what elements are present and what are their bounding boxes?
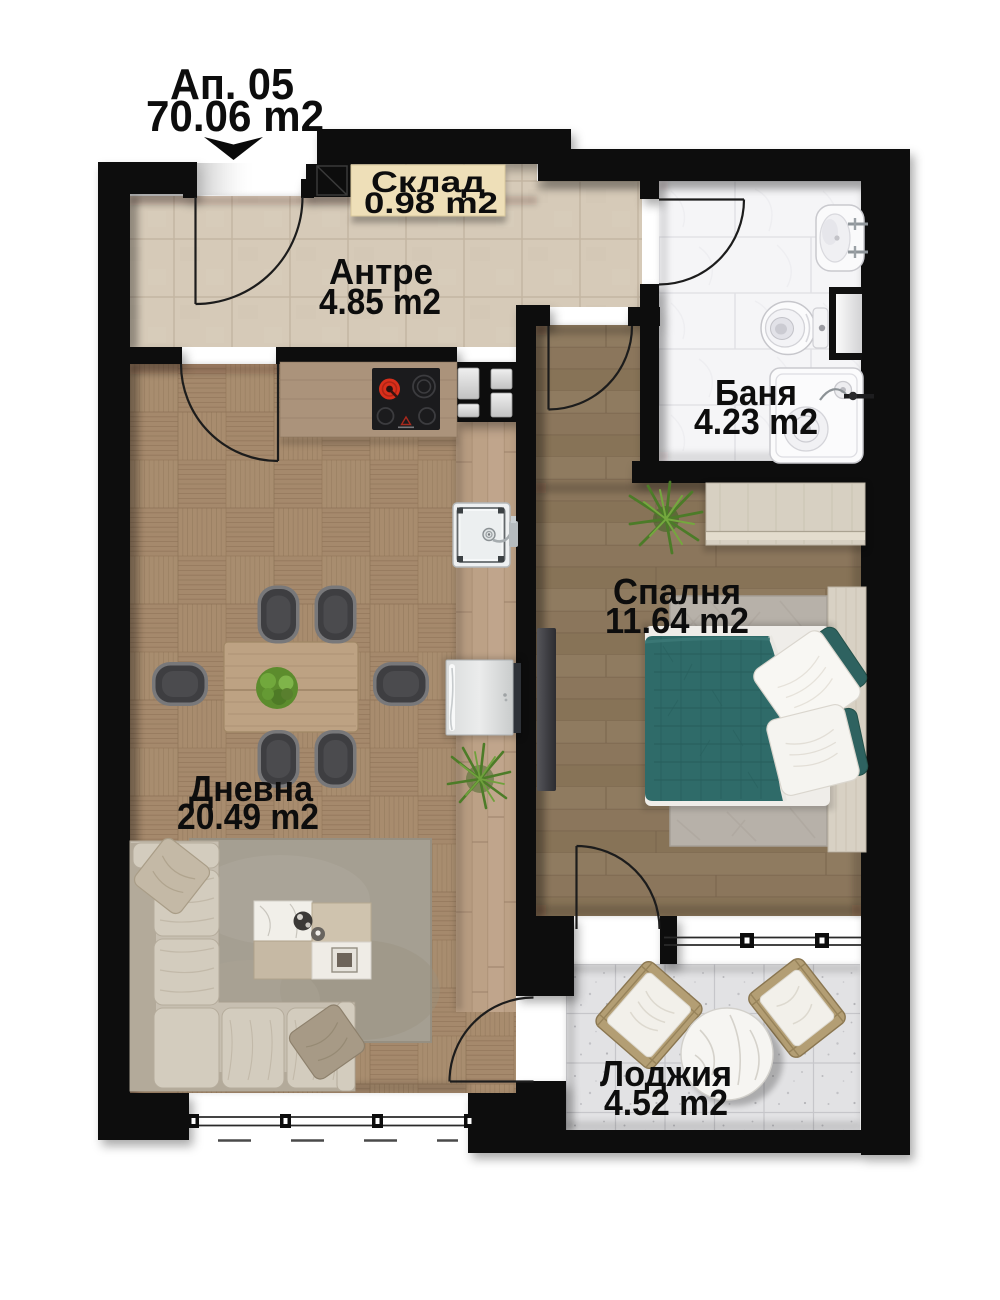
svg-text:20.49 m2: 20.49 m2 <box>177 796 319 837</box>
svg-text:0.98 m2: 0.98 m2 <box>364 187 498 220</box>
svg-text:4.85 m2: 4.85 m2 <box>319 281 441 322</box>
svg-text:4.23 m2: 4.23 m2 <box>694 401 818 442</box>
svg-text:4.52 m2: 4.52 m2 <box>604 1082 728 1123</box>
svg-text:11.64 m2: 11.64 m2 <box>605 600 749 641</box>
svg-text:70.06 m2: 70.06 m2 <box>146 92 324 141</box>
